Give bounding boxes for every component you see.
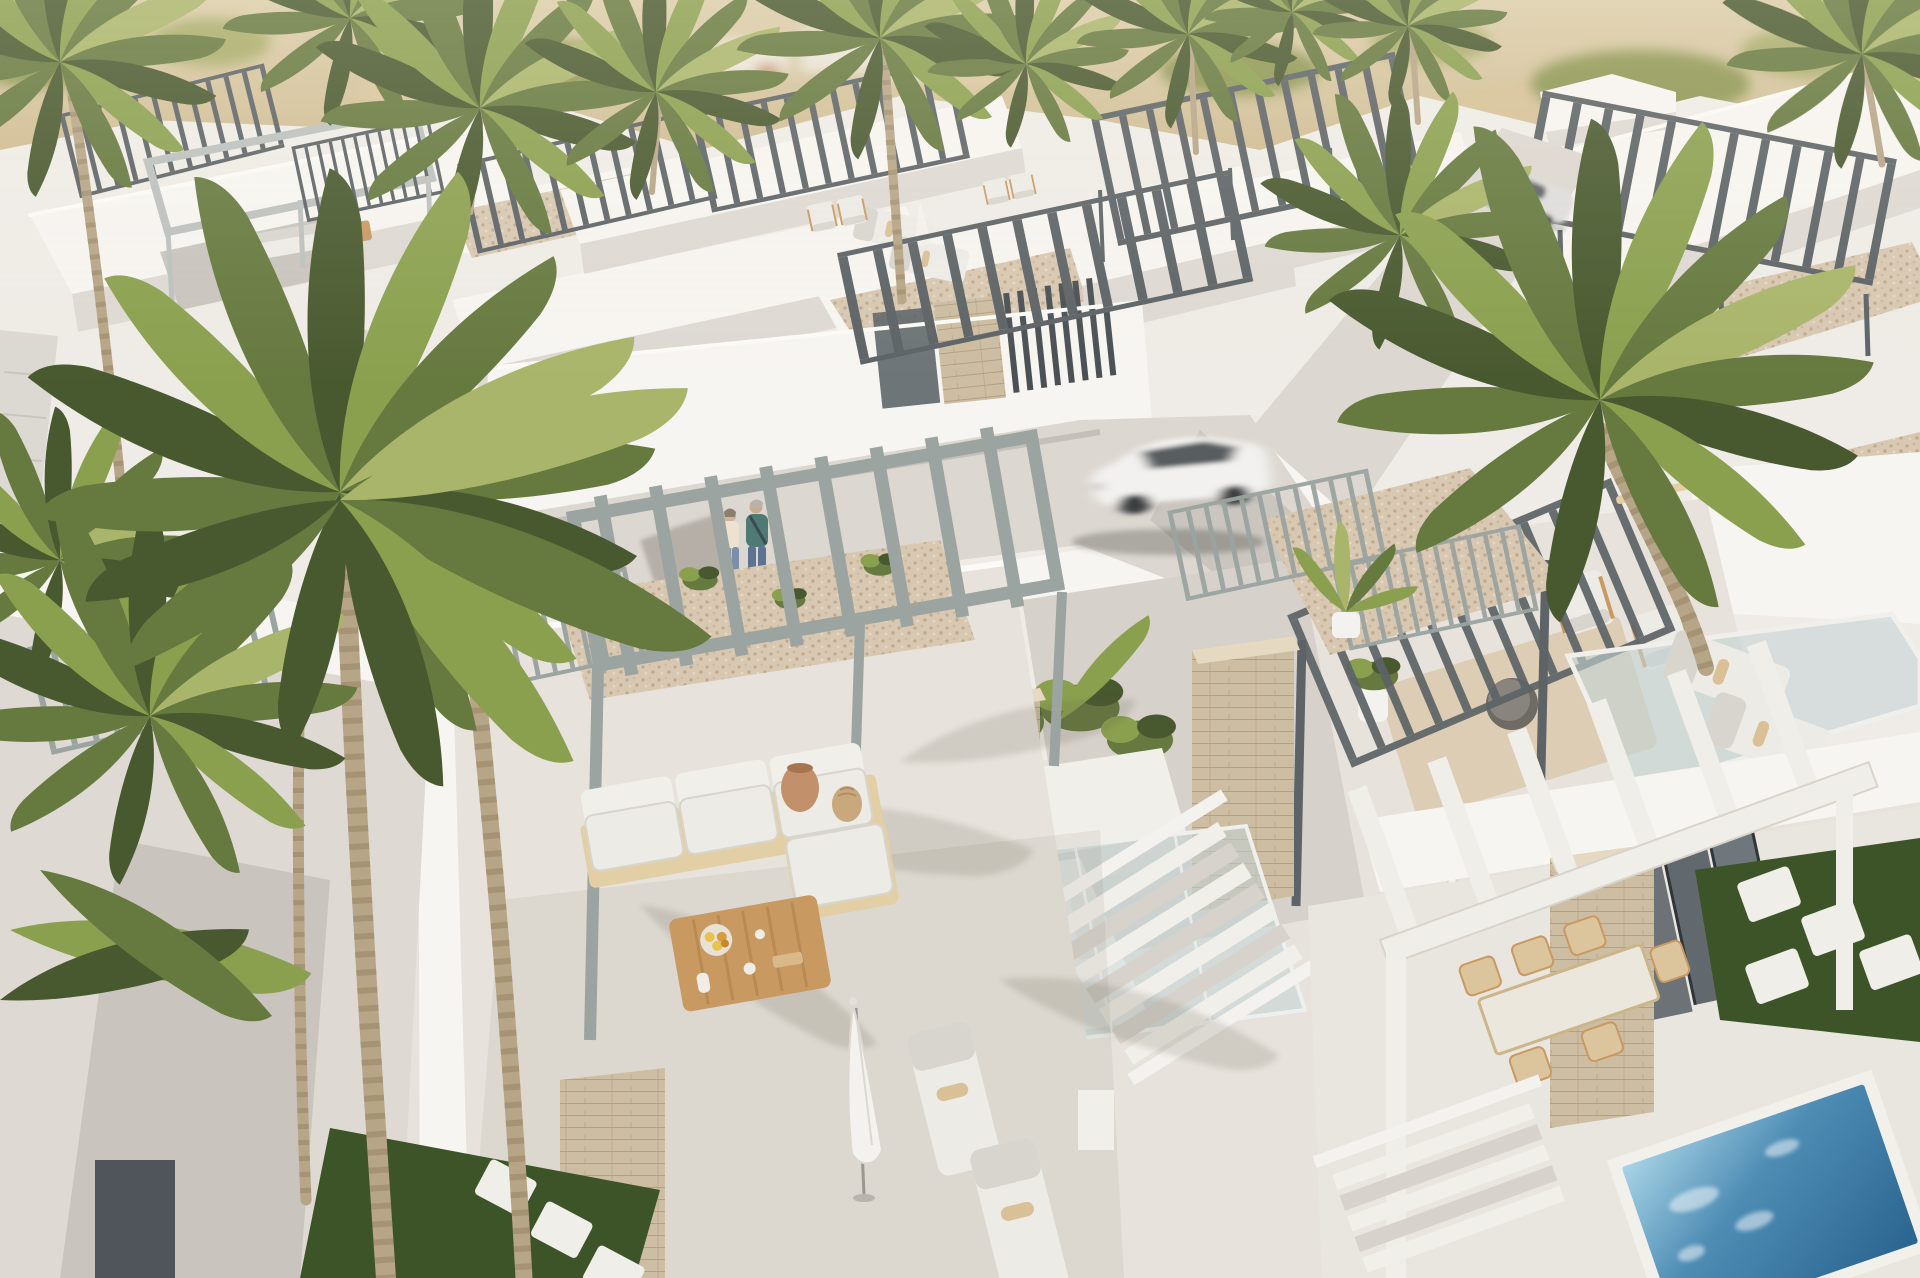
sunlight-overlay — [0, 0, 1920, 1278]
villa-development-render — [0, 0, 1920, 1278]
render-canvas — [0, 0, 1920, 1278]
